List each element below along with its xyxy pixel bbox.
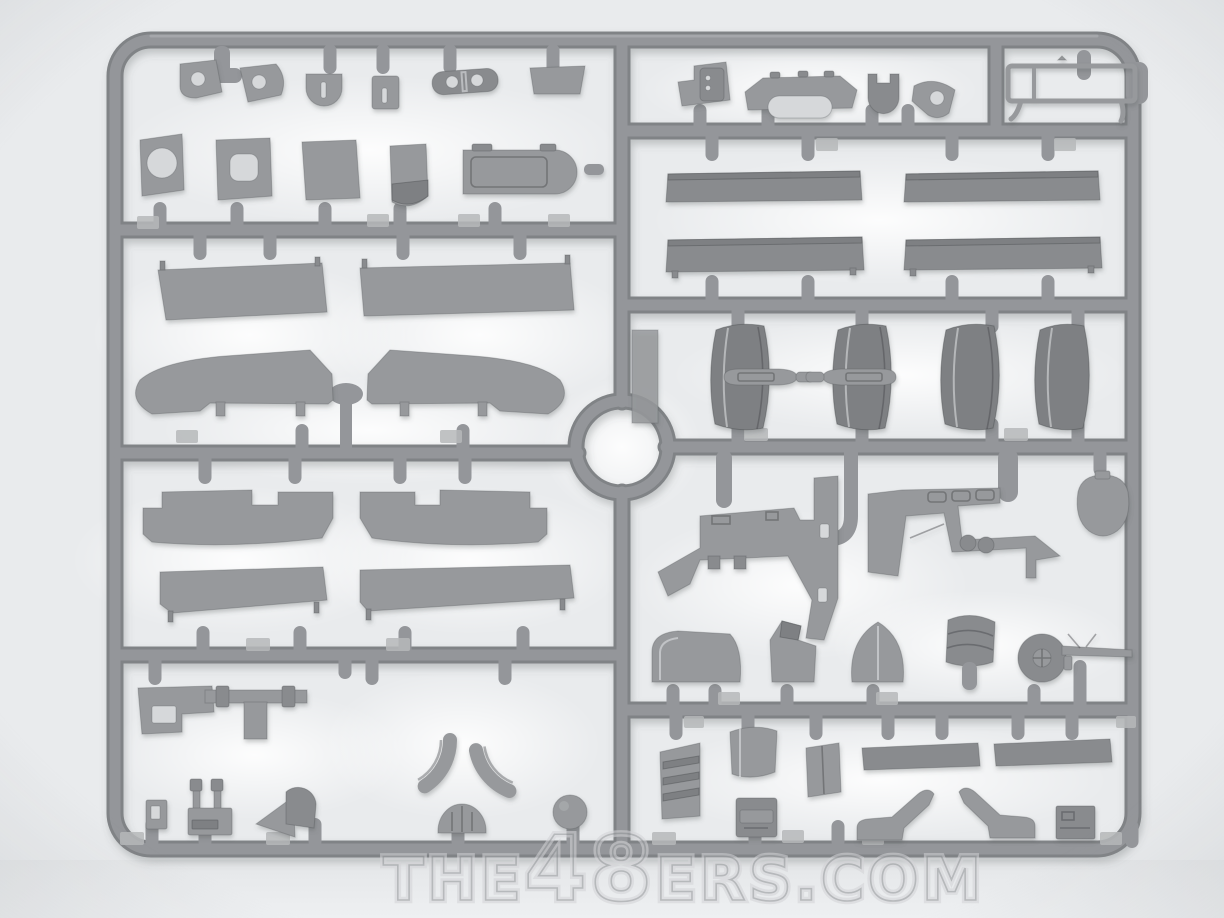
sprue-photo-canvas: THE48ERS.COM THE48ERS.COM — [0, 0, 1224, 918]
photo-vignette — [0, 0, 1224, 918]
sprue-photo: THE48ERS.COM THE48ERS.COM — [0, 0, 1224, 918]
